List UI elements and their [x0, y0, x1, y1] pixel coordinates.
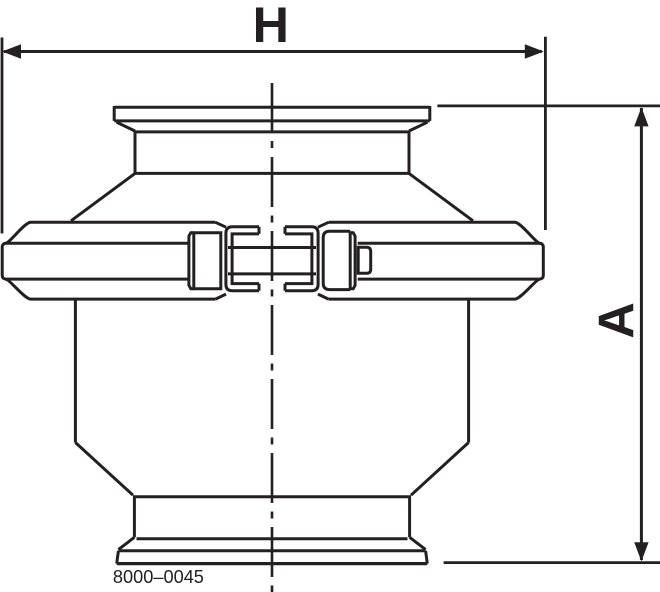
svg-text:A: A — [588, 302, 645, 338]
svg-text:8000–0045: 8000–0045 — [113, 567, 204, 587]
svg-text:H: H — [253, 0, 289, 53]
